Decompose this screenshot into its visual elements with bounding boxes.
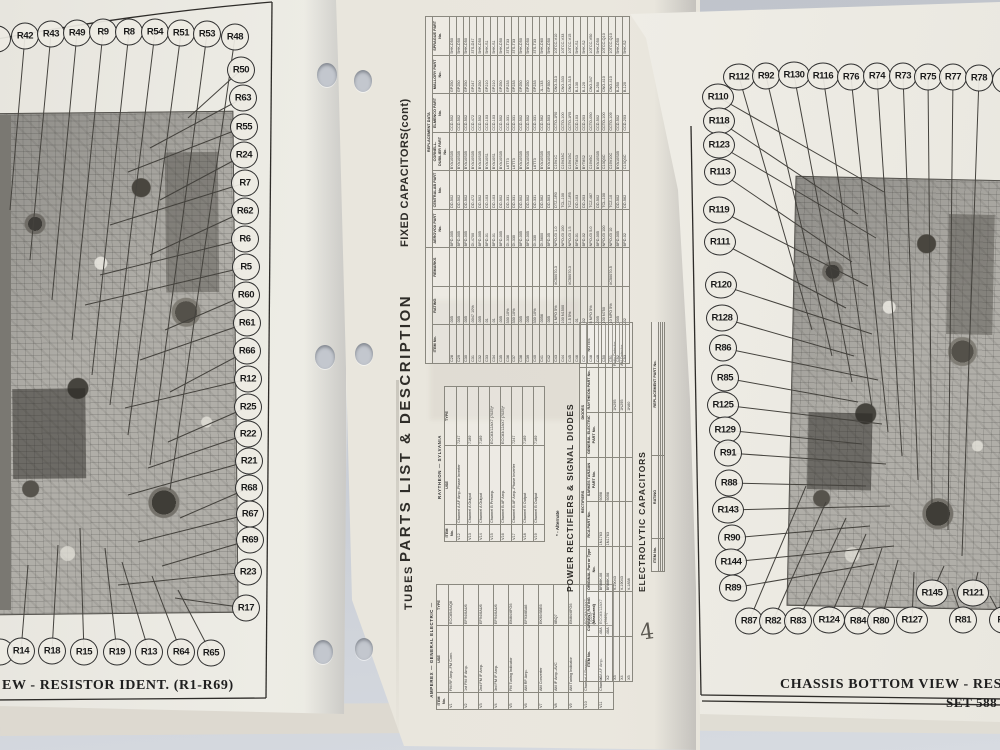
resistor-callout-r61: R61 — [233, 310, 261, 337]
resistor-callout-r119: R119 — [703, 197, 735, 224]
resistor-callout-r19: R19 — [103, 639, 131, 666]
resistor-callout-r81: R81 — [949, 607, 977, 634]
resistor-callout-r51: R51 — [167, 20, 195, 47]
resistor-callout-r127: R127 — [896, 607, 928, 634]
resistor-callout-r90: R90 — [718, 525, 746, 552]
resistor-callout-r111: R111 — [704, 229, 736, 256]
photo-of-service-manual-pages: { "left_page": { "caption": "EW - RESIST… — [0, 0, 1000, 750]
resistor-callout-r123: R123 — [703, 132, 735, 159]
data-table: ITEM No.USETYPEV12Channel A AF Amp.-Phas… — [444, 386, 545, 542]
resistor-callout-r7: R7 — [231, 170, 259, 197]
resistor-callout-r69: R69 — [236, 527, 264, 554]
resistor-callout-r17: R17 — [232, 595, 260, 622]
resistor-callout-r54: R54 — [141, 19, 169, 46]
resistor-callout-r74: R74 — [863, 63, 891, 90]
right-caption: CHASSIS BOTTOM VIEW - RESISTOR — [780, 677, 1000, 693]
punch-hole — [355, 638, 373, 660]
resistor-callout-r49: R49 — [63, 20, 91, 47]
power-rectifiers-heading: POWER RECTIFIERS & SIGNAL DIODES — [565, 404, 575, 592]
resistor-callout-r82: R82 — [759, 608, 787, 635]
resistor-callout-r21: R21 — [235, 448, 263, 475]
power-rectifiers-table-block: RECTIFIERSDIODESITEM No.CURRENT RATING (… — [579, 322, 633, 682]
resistor-callout-r88: R88 — [715, 470, 743, 497]
fixed-capacitors-table-block: REPLACEMENT DATAITEM No.RATINGREMARKSAER… — [425, 16, 630, 364]
left-chassis-photo — [0, 111, 239, 616]
electrolytic-table-block: ITEM No.RATINGREPLACEMENT PART No. — [651, 322, 691, 572]
resistor-callout-r83: R83 — [784, 608, 812, 635]
resistor-callout-r55: R55 — [230, 114, 258, 141]
resistor-callout-r53: R53 — [193, 21, 221, 48]
resistor-callout-r144: R144 — [715, 549, 747, 576]
parts-list-title: PARTS LIST & DESCRIPTION — [397, 294, 414, 562]
resistor-callout-r124: R124 — [813, 607, 845, 634]
resistor-callout-r85: R85 — [711, 365, 739, 392]
resistor-callout-r125: R125 — [707, 392, 739, 419]
data-table: ITEM No.RATINGREPLACEMENT PART No. — [651, 322, 665, 572]
resistor-callout-r110: R110 — [702, 84, 734, 111]
resistor-callout-r66: R66 — [233, 338, 261, 365]
resistor-callout-r6: R6 — [231, 226, 259, 253]
electrolytic-table: ITEM No.RATINGREPLACEMENT PART No. — [651, 322, 665, 572]
resistor-callout-r75: R75 — [914, 64, 942, 91]
resistor-callout-r9: R9 — [89, 19, 117, 46]
tubes-table-b: ITEM No.USETYPEV12Channel A AF Amp.-Phas… — [444, 392, 545, 542]
resistor-callout-r12: R12 — [234, 366, 262, 393]
punch-hole — [355, 343, 373, 365]
resistor-callout-r8: R8 — [115, 19, 143, 46]
resistor-callout-r118: R118 — [703, 108, 735, 135]
punch-hole — [354, 70, 372, 92]
data-table: RECTIFIERSDIODESITEM No.CURRENT RATING (… — [579, 322, 633, 682]
power-rectifiers-table: RECTIFIERSDIODESITEM No.CURRENT RATING (… — [579, 322, 633, 682]
electrolytic-heading: ELECTROLYTIC CAPACITORS — [637, 451, 647, 592]
resistor-callout-r143: R143 — [712, 497, 744, 524]
resistor-callout-r23: R23 — [234, 559, 262, 586]
punch-hole — [317, 63, 337, 87]
resistor-callout-r77: R77 — [939, 64, 967, 91]
data-table: REPLACEMENT DATAITEM No.RATINGREMARKSAER… — [425, 16, 630, 364]
tubes-vendor-header-a: AMPEREX — GENERAL ELECTRIC — — [429, 590, 435, 710]
resistor-callout-r60: R60 — [232, 282, 260, 309]
resistor-callout-r128: R128 — [706, 305, 738, 332]
resistor-callout-r62: R62 — [231, 198, 259, 225]
fixed-capacitors-table: REPLACEMENT DATAITEM No.RATINGREMARKSAER… — [425, 16, 630, 364]
resistor-callout-r145: R145 — [916, 580, 948, 607]
resistor-callout-r14: R14 — [7, 638, 35, 665]
resistor-callout-r22: R22 — [234, 421, 262, 448]
resistor-callout-r130: R130 — [778, 62, 810, 89]
resistor-callout-r78: R78 — [965, 65, 993, 92]
resistor-callout-r64: R64 — [167, 639, 195, 666]
resistor-callout-r25: R25 — [234, 394, 262, 421]
resistor-callout-r18: R18 — [38, 638, 66, 665]
resistor-callout-r63: R63 — [229, 85, 257, 112]
resistor-callout-r43: R43 — [37, 21, 65, 48]
resistor-callout-r121: R121 — [957, 580, 989, 607]
punch-hole — [315, 345, 335, 369]
resistor-callout-r67: R67 — [236, 501, 264, 528]
resistor-callout-r15: R15 — [70, 639, 98, 666]
fixed-capacitors-heading: FIXED CAPACITORS(cont) — [399, 98, 411, 247]
resistor-callout-r91: R91 — [714, 440, 742, 467]
resistor-callout-r42: R42 — [11, 23, 39, 50]
resistor-callout-r120: R120 — [705, 272, 737, 299]
tubes-heading: TUBES — [403, 565, 415, 610]
resistor-callout-r48: R48 — [221, 24, 249, 51]
resistor-callout-r92: R92 — [752, 63, 780, 90]
resistor-callout-r80: R80 — [867, 608, 895, 635]
left-caption: EW - RESISTOR IDENT. (R1-R69) — [2, 678, 234, 694]
alternate-note: * - Alternate — [555, 510, 560, 536]
tubes-vendor-header-b: RAYTHEON — SYLVANIA — [437, 392, 443, 542]
resistor-callout-r89: R89 — [719, 575, 747, 602]
resistor-callout-r76: R76 — [837, 64, 865, 91]
tubes-table-block-b: RAYTHEON — SYLVANIA ITEM No.USETYPEV12Ch… — [437, 392, 545, 542]
resistor-callout-r50: R50 — [227, 57, 255, 84]
right-chassis-photo — [787, 176, 1000, 610]
set-number-label: SET 588 — [946, 695, 997, 711]
left-photo-dark-edge — [0, 115, 11, 610]
resistor-callout-r86: R86 — [709, 335, 737, 362]
resistor-callout-r73: R73 — [889, 63, 917, 90]
resistor-callout-r116: R116 — [807, 63, 839, 90]
punch-hole — [313, 640, 333, 664]
resistor-callout-r13: R13 — [135, 639, 163, 666]
resistor-callout-r5: R5 — [232, 254, 260, 281]
resistor-callout-r65: R65 — [197, 640, 225, 667]
resistor-callout-r68: R68 — [235, 475, 263, 502]
resistor-callout-r24: R24 — [230, 142, 258, 169]
resistor-callout-r113: R113 — [704, 159, 736, 186]
